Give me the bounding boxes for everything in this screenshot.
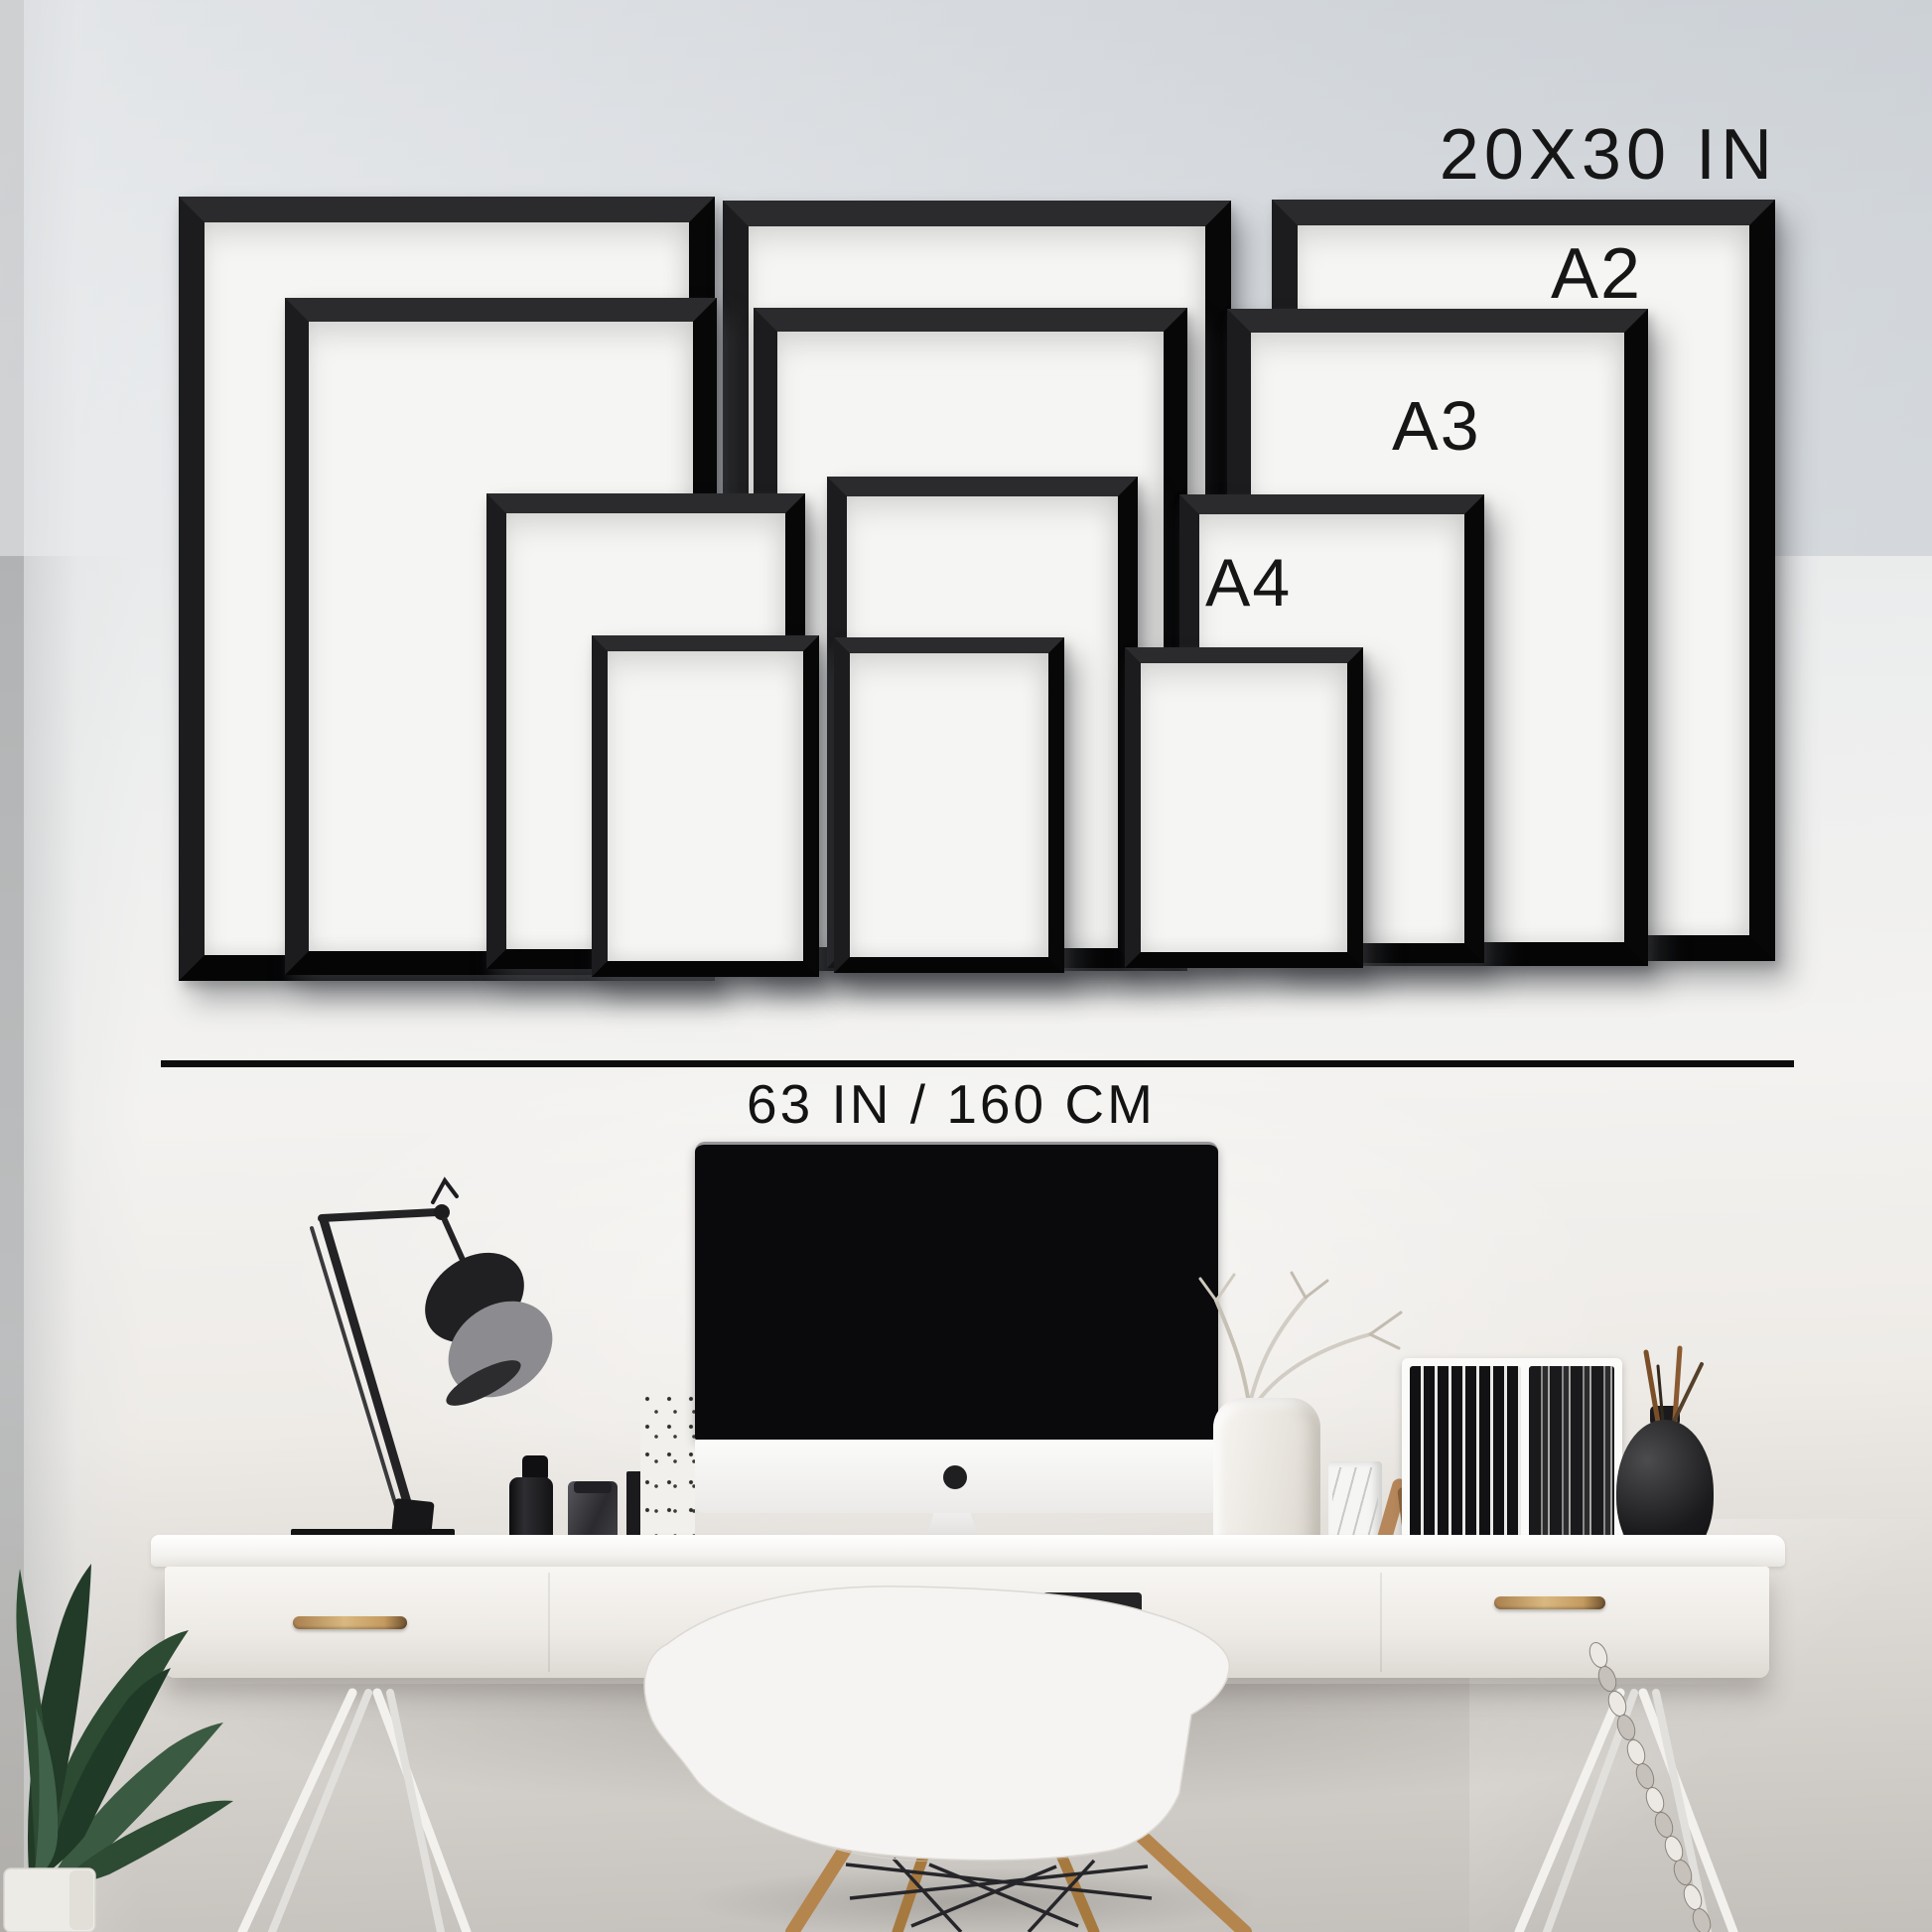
imac-logo-dot: [943, 1465, 967, 1489]
lamp-arm-rod: [312, 1228, 405, 1536]
drawer-seam-right: [1380, 1573, 1382, 1672]
lamp-top-arm: [322, 1212, 437, 1218]
lamp-finial: [433, 1180, 457, 1202]
plant-leaves: [16, 1564, 233, 1886]
chair: [596, 1569, 1291, 1932]
size-guide-room-photo: 20X30 IN A2 A3 A4 63 IN / 160 CM: [0, 0, 1932, 1932]
drawer-handle-left: [293, 1616, 407, 1629]
record-sleeves: [1529, 1366, 1614, 1557]
size-label-a3: A3: [1392, 391, 1481, 461]
frame-a4-left: [592, 635, 819, 977]
dried-branches: [1186, 1253, 1435, 1422]
potted-plant: [0, 1509, 258, 1932]
size-label-a4: A4: [1205, 549, 1292, 617]
size-label-20x30: 20X30 IN: [1440, 119, 1777, 191]
size-label-a2: A2: [1551, 238, 1642, 310]
plant-pot-shade: [69, 1870, 93, 1930]
frame-a4-middle: [834, 637, 1064, 973]
desk-leg-left: [228, 1688, 486, 1932]
desk-top: [151, 1535, 1785, 1567]
imac-chin: [695, 1440, 1218, 1513]
speckle-texture: [640, 1390, 695, 1553]
drawer-seam-left: [548, 1573, 550, 1672]
frame-a4-right: [1125, 647, 1363, 968]
chair-shell: [644, 1587, 1229, 1861]
speckled-vase: [640, 1390, 695, 1553]
decor-spine: [1569, 1643, 1737, 1932]
width-measure-line: [161, 1060, 1794, 1067]
width-measure-label: 63 IN / 160 CM: [703, 1077, 1199, 1132]
lamp-joint: [434, 1204, 450, 1220]
imac-screen: [695, 1142, 1218, 1440]
lamp-arm: [324, 1220, 417, 1536]
black-folders: [1410, 1366, 1521, 1557]
lamp-hinge: [445, 1220, 463, 1260]
drawer-handle-right: [1494, 1596, 1605, 1609]
glass-jar-lid: [574, 1481, 612, 1493]
